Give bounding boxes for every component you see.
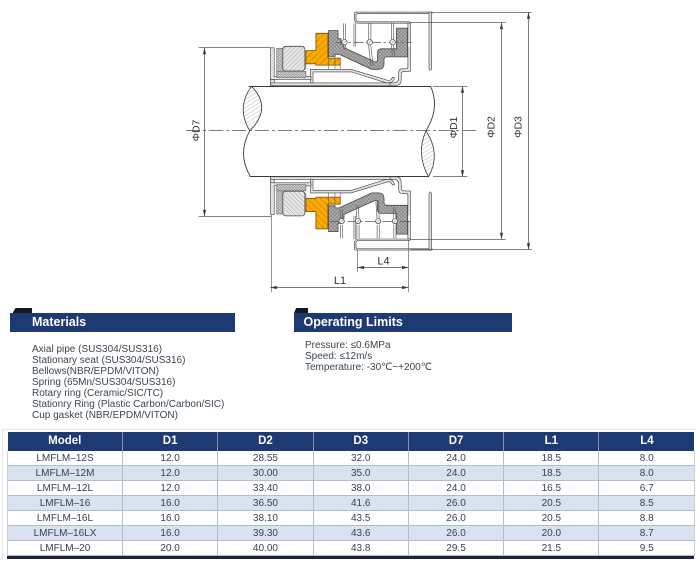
svg-text:L1: L1: [334, 275, 346, 287]
svg-text:ΦD7: ΦD7: [191, 119, 203, 141]
svg-text:L4: L4: [377, 256, 389, 268]
svg-text:ΦD2: ΦD2: [486, 116, 498, 138]
svg-text:ΦD1: ΦD1: [448, 116, 460, 138]
svg-text:ΦD3: ΦD3: [513, 116, 525, 138]
